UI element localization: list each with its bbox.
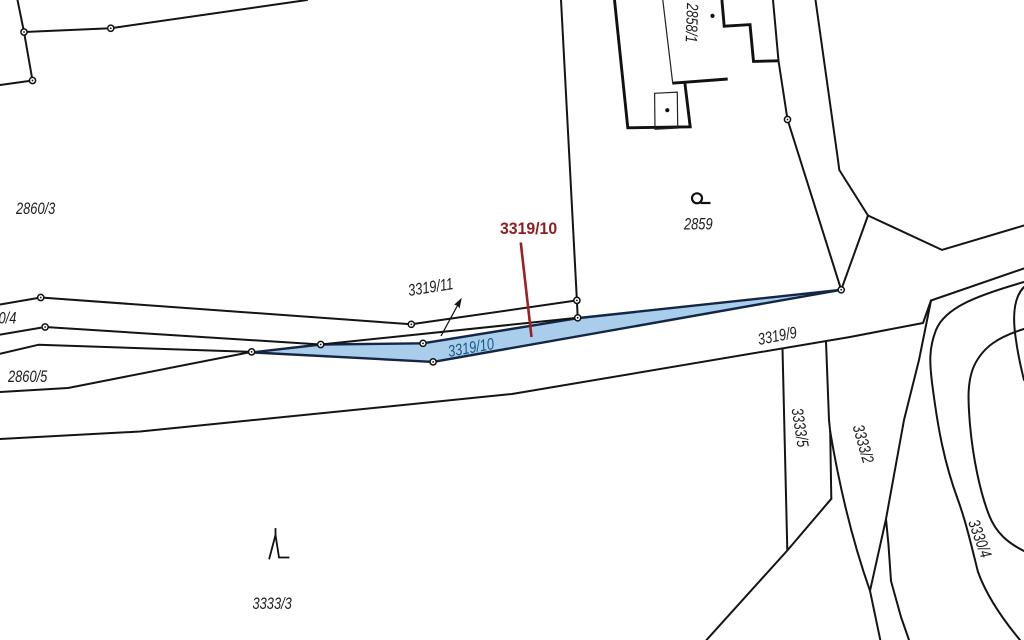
svg-text:2860/5: 2860/5 (7, 369, 48, 387)
svg-text:2859: 2859 (683, 216, 712, 234)
svg-text:3319/10: 3319/10 (500, 220, 557, 239)
svg-text:2858/1: 2858/1 (681, 2, 700, 43)
svg-text:3333/5: 3333/5 (787, 407, 811, 449)
svg-text:3333/2: 3333/2 (848, 423, 876, 466)
svg-text:2860/3: 2860/3 (15, 201, 56, 219)
svg-text:3319/9: 3319/9 (756, 324, 798, 349)
svg-text:3330/4: 3330/4 (964, 517, 994, 560)
svg-text:3319/11: 3319/11 (407, 276, 455, 301)
svg-text:0/4: 0/4 (0, 310, 16, 328)
svg-text:3333/3: 3333/3 (253, 596, 293, 614)
